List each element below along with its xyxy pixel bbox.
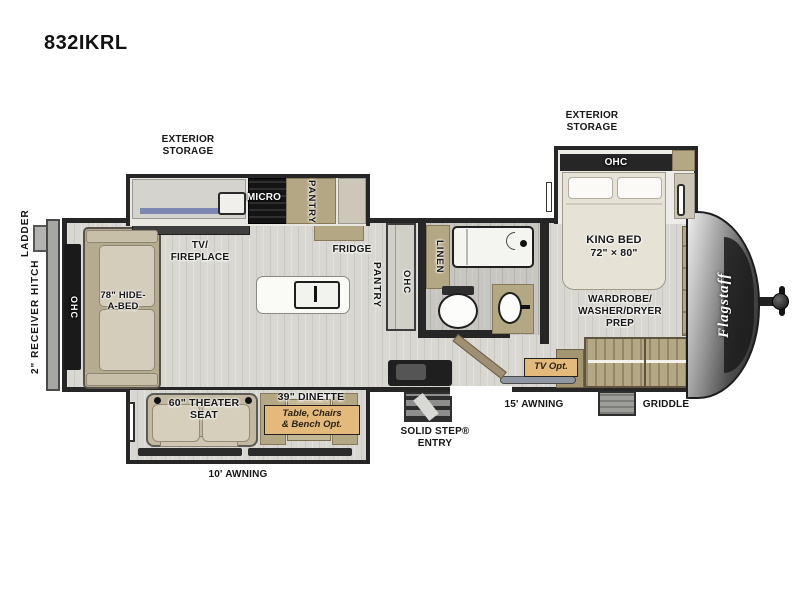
sofa-arm-bottom bbox=[86, 373, 158, 386]
rear-ohc-label: OHC bbox=[66, 282, 79, 332]
wardrobe-label: WARDROBE/ WASHER/DRYER PREP bbox=[558, 294, 682, 329]
island-sink bbox=[294, 281, 340, 309]
toilet-bowl bbox=[438, 293, 478, 329]
counter-accent-strip bbox=[140, 208, 224, 214]
cooktop-burner bbox=[396, 364, 426, 380]
sofa-cushion-bottom bbox=[99, 309, 155, 371]
theater-seat-label: 60" THEATER SEAT bbox=[148, 397, 260, 422]
bedroom-window-left bbox=[546, 182, 552, 212]
dinette-label: 39" DINETTE bbox=[260, 391, 362, 403]
sofa-arm-top bbox=[86, 230, 158, 243]
griddle-unit bbox=[598, 391, 636, 416]
hitch-knob bbox=[772, 293, 789, 310]
slide-rail-right bbox=[248, 448, 352, 456]
slide-rail-left bbox=[138, 448, 242, 456]
awning-15-label: 15' AWNING bbox=[482, 399, 586, 411]
bathroom-wall-right bbox=[540, 218, 549, 344]
vanity-sink bbox=[498, 292, 522, 324]
slide-window bbox=[128, 402, 135, 442]
exterior-storage-right-label: EXTERIOR STORAGE bbox=[546, 110, 638, 134]
hide-a-bed-label: 78" HIDE- A-BED bbox=[84, 290, 162, 312]
tv-opt-badge: TV Opt. bbox=[524, 358, 578, 377]
king-bed-label: KING BED 72" × 80" bbox=[564, 234, 664, 259]
tv-fireplace-label: TV/ FIREPLACE bbox=[150, 240, 250, 264]
bed-pillow-left bbox=[568, 177, 613, 199]
bed-seam bbox=[566, 203, 662, 205]
rear-bumper bbox=[46, 219, 60, 391]
dinette-option-badge: Table, Chairs & Bench Opt. bbox=[264, 405, 360, 435]
ladder-label: LADDER bbox=[20, 200, 36, 266]
awning-10-label: 10' AWNING bbox=[186, 469, 290, 481]
bed-pillow-right bbox=[617, 177, 662, 199]
ohc-cabinet-divider bbox=[395, 225, 396, 329]
brand-logo: Flagstaff bbox=[716, 246, 738, 364]
bathroom-wall-left bbox=[418, 218, 426, 338]
ohc-cabinet-label: OHC bbox=[398, 262, 412, 302]
bedroom-corner-cabinet bbox=[672, 150, 695, 171]
exterior-storage-left-label: EXTERIOR STORAGE bbox=[142, 134, 234, 158]
linen-label: LINEN bbox=[431, 230, 445, 284]
entry-door-opening bbox=[450, 386, 512, 396]
model-title: 832IKRL bbox=[44, 32, 128, 55]
tub-seat-line bbox=[466, 229, 468, 265]
wall-tv bbox=[500, 376, 576, 384]
solid-step-label: SOLID STEP® ENTRY bbox=[382, 426, 488, 450]
pantry-slide-label: PANTRY bbox=[303, 180, 317, 224]
island-faucet bbox=[314, 286, 317, 302]
micro-label: MICRO bbox=[234, 192, 294, 204]
floorplan-canvas: 832IKRL LADDER 2" RECEIVER HITCH Flagsta… bbox=[0, 0, 800, 600]
bedroom-window-right bbox=[677, 184, 685, 216]
wardrobe-divider bbox=[644, 339, 646, 386]
bedroom-ohc-label: OHC bbox=[588, 157, 644, 169]
pantry-island-label: PANTRY bbox=[366, 254, 382, 316]
vanity-faucet bbox=[521, 305, 530, 309]
griddle-label: GRIDDLE bbox=[634, 399, 698, 411]
receiver-hitch-label: 2" RECEIVER HITCH bbox=[30, 258, 46, 376]
slide-end-cabinet bbox=[338, 178, 366, 224]
